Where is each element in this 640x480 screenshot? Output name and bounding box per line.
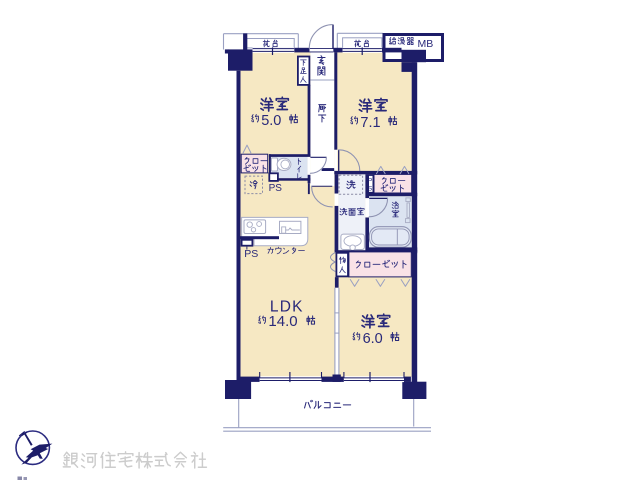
svg-text:PS: PS — [269, 183, 283, 194]
svg-text:6.0: 6.0 — [363, 331, 383, 347]
svg-text:7.1: 7.1 — [360, 115, 380, 131]
svg-text:PS: PS — [244, 248, 258, 260]
svg-text:MB: MB — [418, 38, 434, 50]
svg-text:14.0: 14.0 — [268, 313, 297, 330]
svg-text:5.0: 5.0 — [261, 113, 281, 129]
